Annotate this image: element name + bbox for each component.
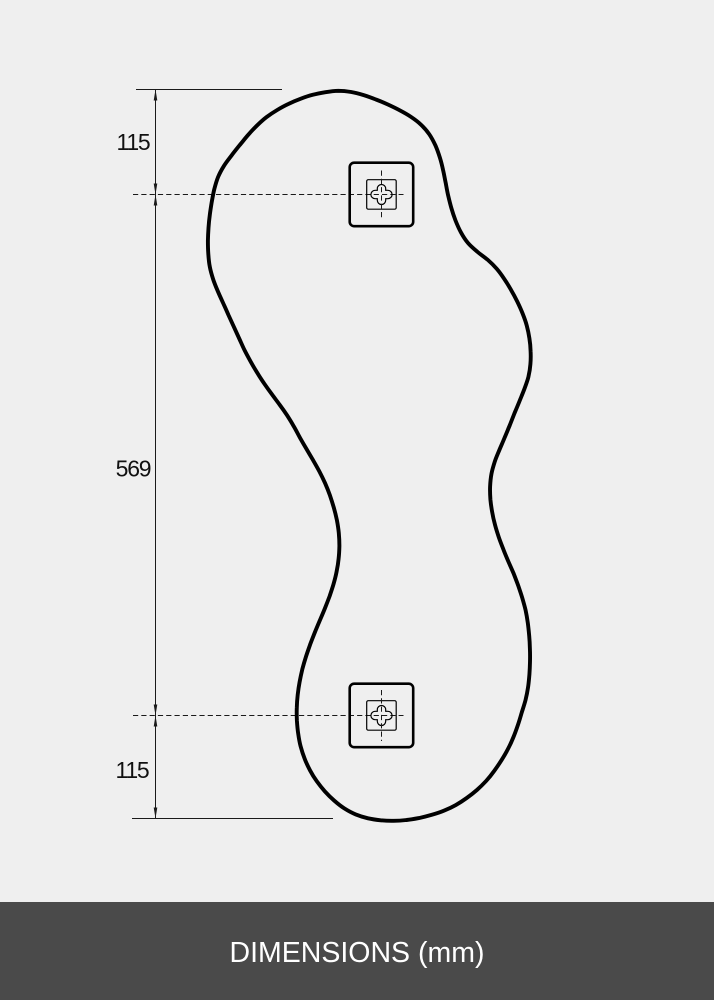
svg-text:115: 115: [115, 757, 148, 783]
svg-text:DIMENSIONS (mm): DIMENSIONS (mm): [230, 937, 485, 969]
svg-text:115: 115: [116, 129, 149, 155]
svg-text:569: 569: [116, 456, 151, 482]
